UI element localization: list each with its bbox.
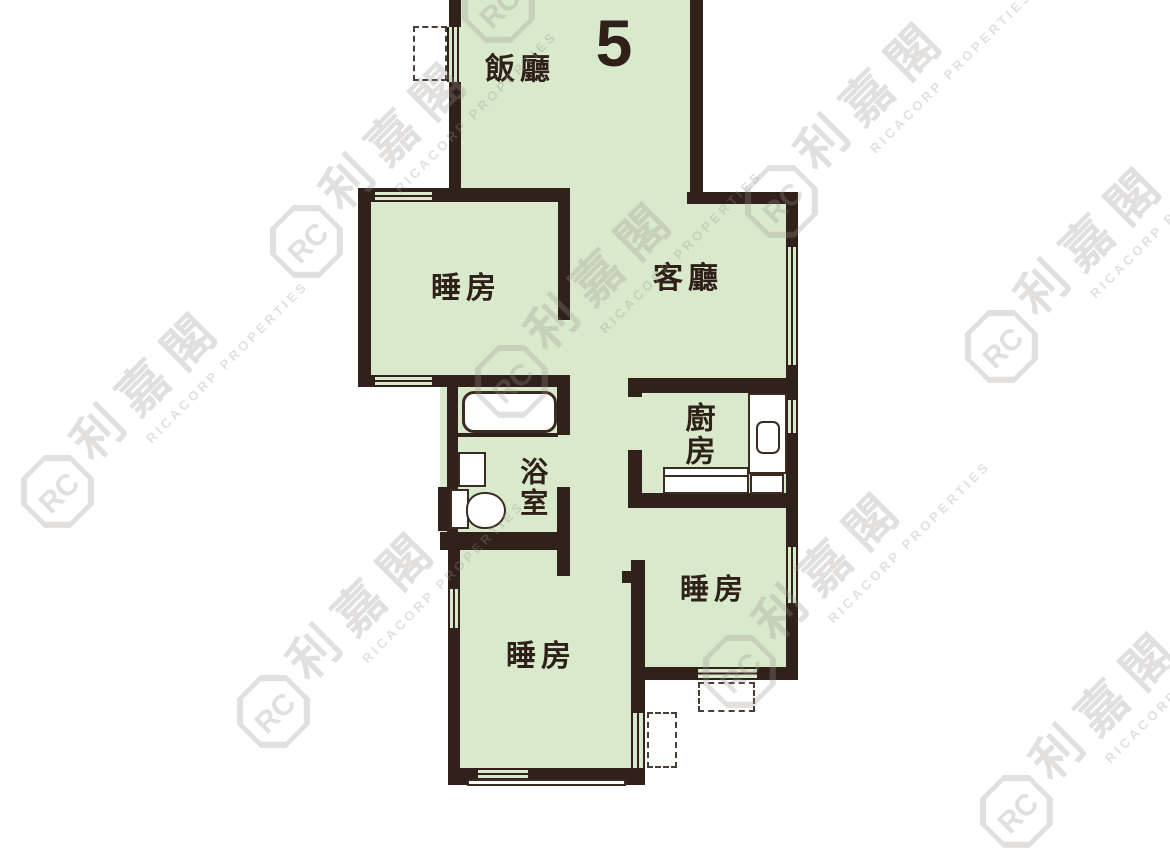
wall xyxy=(628,378,798,393)
wall xyxy=(628,378,642,397)
bathtub-platform-edge xyxy=(458,433,558,437)
room-label-bedroom-2: 睡房 xyxy=(648,574,780,607)
watermark-text: 利嘉閣 RICACORP PROPERTIES xyxy=(63,237,311,485)
wall xyxy=(449,82,461,202)
watermark-brand-latin: RICACORP PROPERTIES xyxy=(825,458,993,626)
watermark-logo-monogram: RC xyxy=(32,466,86,520)
wall xyxy=(786,192,798,247)
ricacorp-logo-watermark: RC xyxy=(224,662,323,761)
wall xyxy=(631,560,645,713)
ricacorp-logo-watermark: RC xyxy=(967,762,1066,861)
window xyxy=(698,667,757,680)
room-label-kitchen: 廚房 xyxy=(679,401,714,469)
watermark-brand-latin: RICACORP PROPERTIES xyxy=(1102,598,1170,766)
window xyxy=(786,547,798,603)
wall xyxy=(687,192,798,204)
wall xyxy=(557,487,570,532)
watermark-brand-cjk: 利嘉閣 xyxy=(1022,557,1170,789)
watermark-brand-latin: RICACORP PROPERTIES xyxy=(1087,133,1170,301)
kitchen-sink xyxy=(756,421,780,454)
window xyxy=(375,375,432,387)
bathtub xyxy=(462,391,557,433)
wash-basin xyxy=(458,452,486,487)
toilet-bowl xyxy=(466,492,506,529)
window xyxy=(448,589,460,628)
room-label-living: 客廳 xyxy=(622,262,754,297)
window xyxy=(786,247,798,365)
wall-pilaster xyxy=(438,487,448,531)
wall xyxy=(628,493,798,508)
wall xyxy=(448,628,460,768)
ac-platform xyxy=(413,26,447,81)
dining-room-floor xyxy=(449,0,703,202)
wall xyxy=(558,200,570,320)
watermark-logo-monogram: RC xyxy=(248,686,302,740)
kitchen-counter xyxy=(663,467,749,494)
floor-plan: 飯廳 5 睡房 客廳 廚房 浴室 睡房 睡房 RC 利嘉閣 RICACORP P… xyxy=(0,0,1170,785)
window xyxy=(786,400,798,433)
watermark-brand-latin: RICACORP PROPERTIES xyxy=(143,278,311,446)
wall xyxy=(557,383,570,435)
stove xyxy=(750,474,784,494)
window xyxy=(631,713,645,768)
ac-platform xyxy=(647,712,677,768)
unit-number: 5 xyxy=(583,6,645,82)
window xyxy=(375,190,432,202)
watermark: RC 利嘉閣 RICACORP PROPERTIES xyxy=(966,557,1170,862)
wall xyxy=(448,550,460,589)
watermark-brand-cjk: 利嘉閣 xyxy=(63,237,295,469)
room-label-bathroom: 浴室 xyxy=(516,455,548,521)
watermark: RC 利嘉閣 RICACORP PROPERTIES xyxy=(951,92,1170,397)
wall-stub xyxy=(557,550,570,576)
watermark-text: 利嘉閣 RICACORP PROPERTIES xyxy=(787,0,1035,195)
watermark-text: 利嘉閣 RICACORP PROPERTIES xyxy=(1007,92,1170,340)
room-label-bedroom-1: 睡房 xyxy=(400,272,532,307)
watermark: RC 利嘉閣 RICACORP PROPERTIES xyxy=(7,237,312,542)
watermark-brand-cjk: 利嘉閣 xyxy=(1007,92,1170,324)
watermark-logo-monogram: RC xyxy=(281,216,335,270)
watermark-logo-monogram: RC xyxy=(976,321,1030,375)
ricacorp-logo-watermark: RC xyxy=(952,297,1051,396)
watermark-logo-monogram: RC xyxy=(991,786,1045,840)
watermark-brand-latin: RICACORP PROPERTIES xyxy=(867,0,1035,156)
ricacorp-logo-watermark: RC xyxy=(8,442,107,541)
ac-platform xyxy=(698,682,755,712)
wall xyxy=(690,0,703,202)
wall xyxy=(786,433,798,547)
door-jamb xyxy=(622,571,631,583)
watermark-brand-cjk: 利嘉閣 xyxy=(787,0,1019,179)
wall xyxy=(358,188,371,387)
wall xyxy=(440,532,570,550)
ricacorp-logo-watermark: RC xyxy=(257,192,356,291)
room-label-bedroom-3: 睡房 xyxy=(475,640,607,675)
wall xyxy=(449,0,461,27)
watermark-text: 利嘉閣 RICACORP PROPERTIES xyxy=(1022,557,1170,805)
room-label-dining: 飯廳 xyxy=(454,53,586,88)
